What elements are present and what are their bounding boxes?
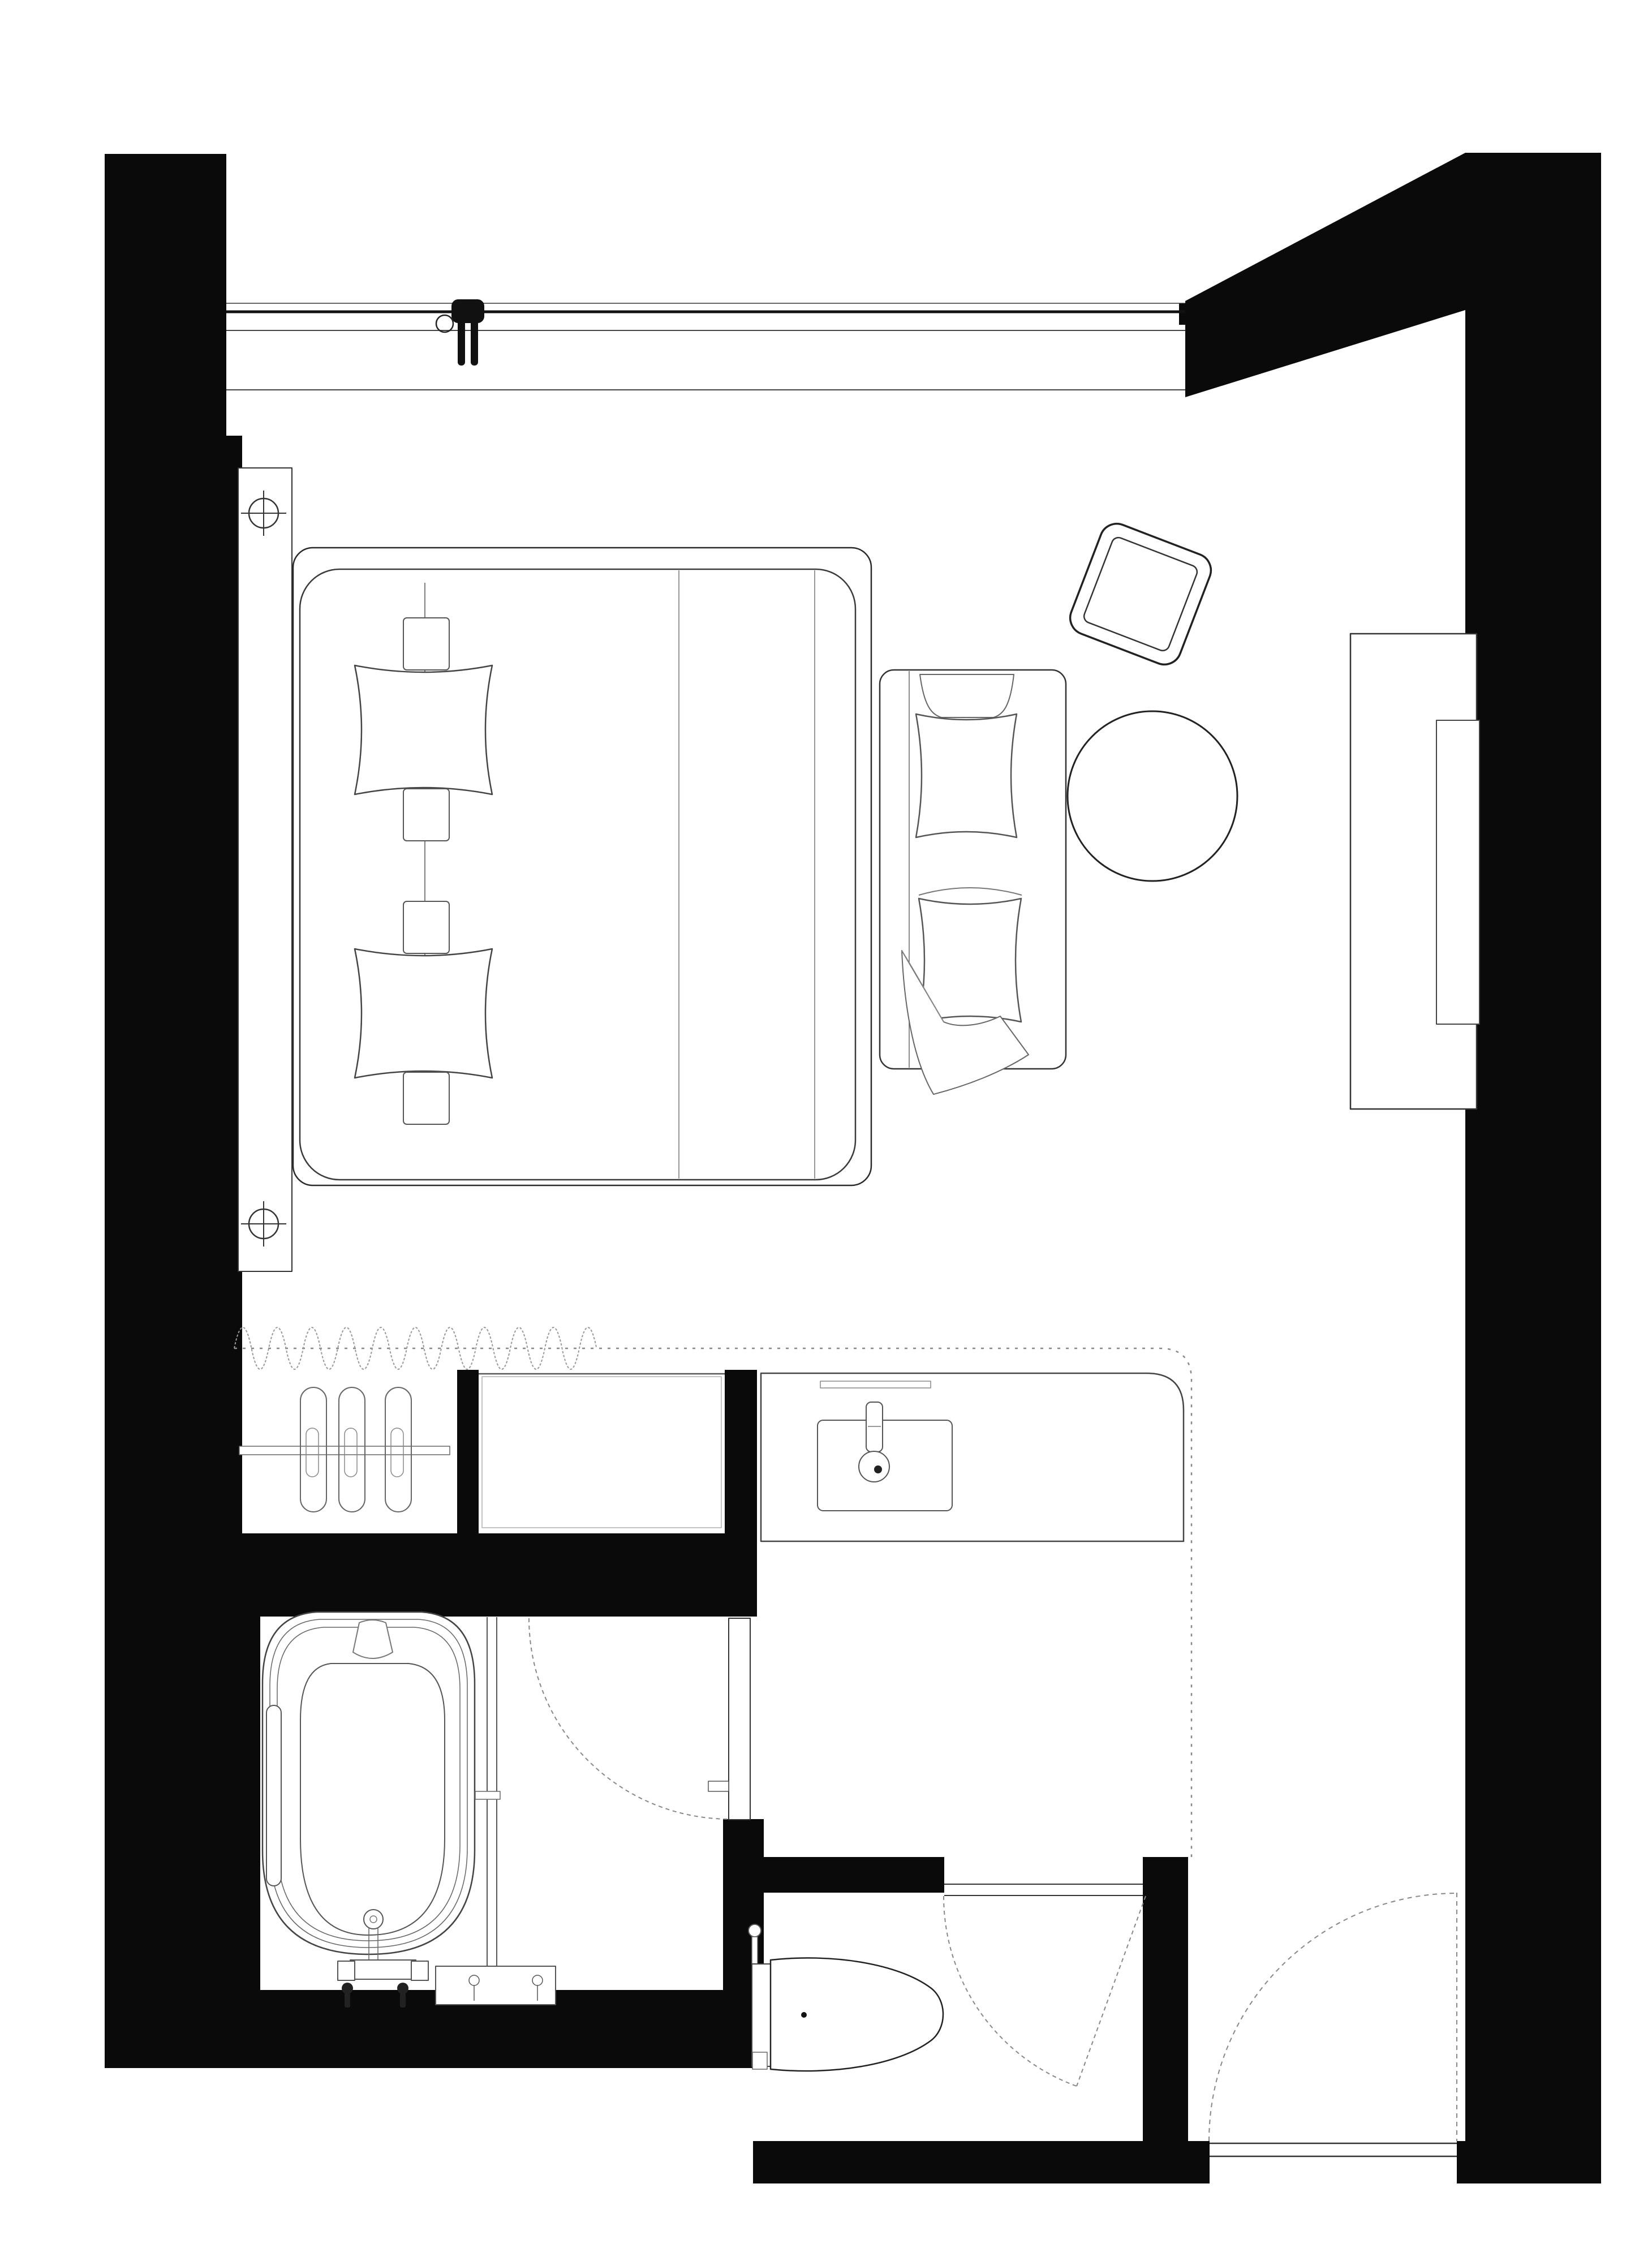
wall-left-lower [105, 1533, 260, 2068]
bathroom-door-leaf [729, 1618, 750, 1820]
bathtub-headrest [353, 1620, 393, 1658]
curtain-tieback-body [451, 299, 484, 323]
wall-left-mid [105, 436, 242, 1536]
wall-left-upper [105, 154, 226, 437]
curtain-tieback-prong-right [471, 320, 478, 366]
wall-window-end-nub [1179, 303, 1198, 325]
toilet-drain-dot [801, 2012, 807, 2018]
tub-overflow [364, 1910, 383, 1929]
entry-door-swing [1209, 1893, 1457, 2141]
pillow-tab [403, 1072, 449, 1124]
toilet-flush-pipe [752, 1937, 758, 1964]
curtain-tieback-loop [436, 315, 453, 332]
pillow-tab [403, 618, 449, 670]
tub-grab-bar [266, 1705, 281, 1886]
tub-deck-cap-left [338, 1961, 355, 1980]
wall-bottom-left [753, 2141, 1210, 2183]
tub-valve-stem [345, 1993, 350, 2008]
faucet-spout [859, 1451, 889, 1482]
floor-plan-page [0, 0, 1652, 2261]
toilet-door-leaf [1077, 1896, 1146, 2086]
wall-mid-band [238, 1533, 757, 1617]
sofa-back-cushion [920, 674, 1014, 717]
toilet-door-swing [944, 1896, 1077, 2086]
faucet-spout-dot [874, 1465, 882, 1473]
tub-deck-cap-right [411, 1961, 428, 1980]
art-frame-outer [1065, 519, 1216, 669]
wall-closet-bar [457, 1370, 479, 1535]
bed-duvet [300, 569, 855, 1180]
tub-valve-foot [342, 1983, 353, 1994]
faucet-handle [866, 1402, 883, 1452]
wall-toilet-top [764, 1857, 944, 1893]
pillow-tab [403, 789, 449, 841]
luggage-niche [482, 1377, 721, 1528]
headboard-panel [238, 468, 292, 1271]
pillow-body-2 [355, 949, 492, 1078]
toilet-bowl [771, 1958, 943, 2071]
partition-latch [475, 1791, 500, 1799]
curtain-tieback-prong-left [458, 320, 465, 366]
pillow-body-1 [355, 665, 492, 794]
toilet-flush-valve [748, 1924, 761, 1937]
vanity-ledge [820, 1381, 931, 1388]
tub-faucet-deck [350, 1960, 416, 1979]
wall-toilet-divider [1143, 1857, 1188, 2141]
wall-bath-bottom [105, 1990, 764, 2068]
tub-valve-stem [400, 1993, 406, 2008]
coffee-table [1068, 711, 1237, 881]
pillow-tab [403, 901, 449, 953]
floor-plan-drawing [0, 0, 1652, 2261]
tub-valve-foot [397, 1983, 408, 1994]
wall-corner-diagonal [1185, 153, 1465, 397]
wall-bottom-right [1457, 2141, 1601, 2183]
wall-right [1465, 153, 1601, 2183]
sofa-pillow-top [916, 714, 1017, 837]
sofa-pillow-bottom [919, 899, 1021, 1022]
toilet-corner-box [752, 2052, 767, 2069]
bathroom-door-handle [708, 1781, 729, 1791]
bathroom-door-swing [529, 1618, 730, 1819]
tv-panel [1436, 720, 1479, 1024]
